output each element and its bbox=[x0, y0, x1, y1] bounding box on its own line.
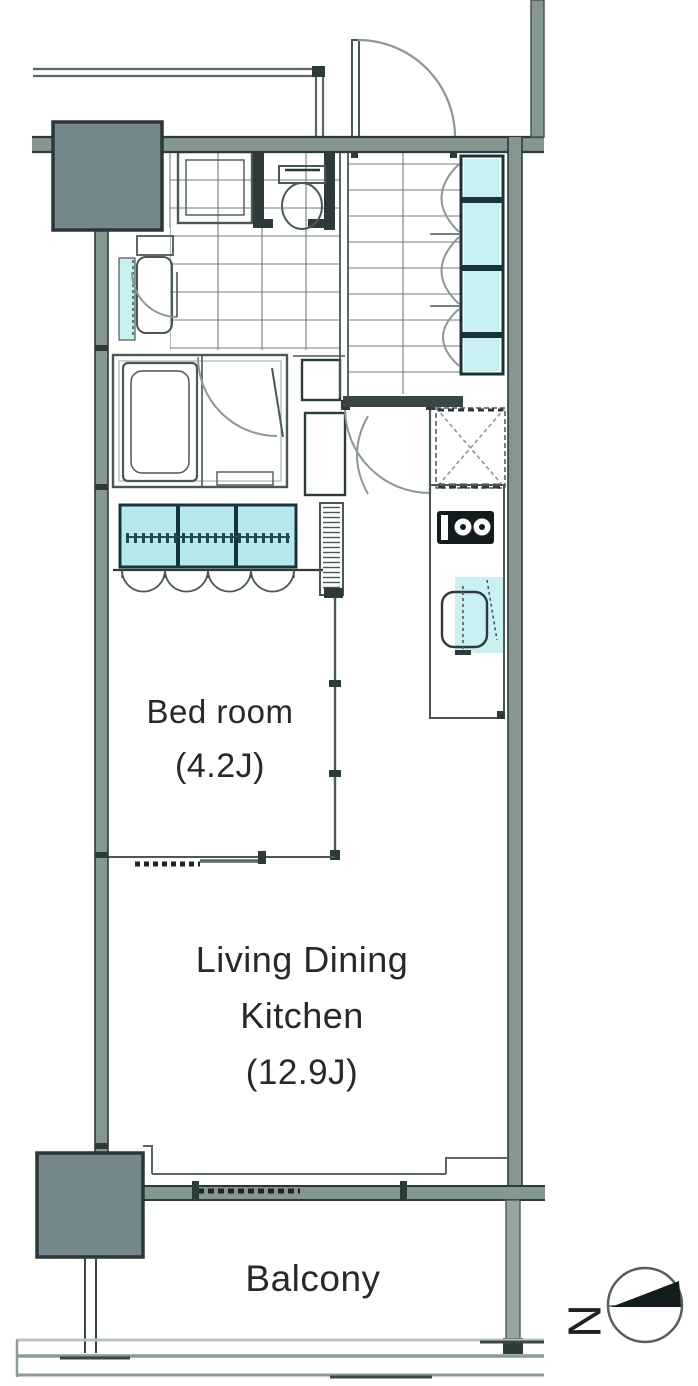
entry-floor-planks bbox=[348, 152, 461, 394]
corridor-storage bbox=[293, 356, 368, 495]
bedroom-size-label: (4.2J) bbox=[100, 740, 340, 793]
entry-folding-doors bbox=[430, 164, 461, 366]
ldk-size-label: (12.9J) bbox=[140, 1046, 464, 1100]
stove-icon bbox=[437, 511, 494, 544]
washroom bbox=[108, 228, 177, 352]
washing-machine-icon bbox=[178, 152, 252, 223]
bedroom-sliding-track bbox=[108, 851, 335, 864]
north-label: N bbox=[558, 1304, 610, 1337]
balcony-label: Balcony bbox=[193, 1250, 433, 1307]
closet-hanger-rod bbox=[126, 537, 290, 538]
toilet-icon bbox=[279, 166, 325, 229]
pillar-top-left bbox=[53, 122, 162, 230]
kitchen-counter bbox=[430, 485, 505, 719]
ldk-label: Living Dining Kitchen bbox=[140, 932, 464, 1044]
bathroom bbox=[113, 355, 287, 487]
corridor-door-swing bbox=[341, 400, 435, 495]
floor-plan: N Bed room (4.2J) Living Dining Kitchen … bbox=[0, 0, 698, 1386]
bathtub-icon bbox=[123, 363, 197, 481]
shoe-cabinet bbox=[461, 156, 503, 374]
bedroom-closet bbox=[113, 505, 323, 592]
pillar-bottom-left bbox=[37, 1153, 143, 1257]
shelf-cabinet bbox=[320, 503, 343, 598]
kitchen-sink-icon bbox=[442, 577, 503, 655]
bathroom-door-swing bbox=[198, 357, 283, 437]
refrigerator-space bbox=[436, 408, 505, 488]
north-arrow-icon: N bbox=[558, 1268, 682, 1342]
closet-folding-doors bbox=[122, 570, 294, 592]
toilet-room bbox=[253, 153, 335, 230]
bedroom-label: Bed room bbox=[100, 686, 340, 737]
balcony-partition bbox=[503, 1200, 523, 1354]
